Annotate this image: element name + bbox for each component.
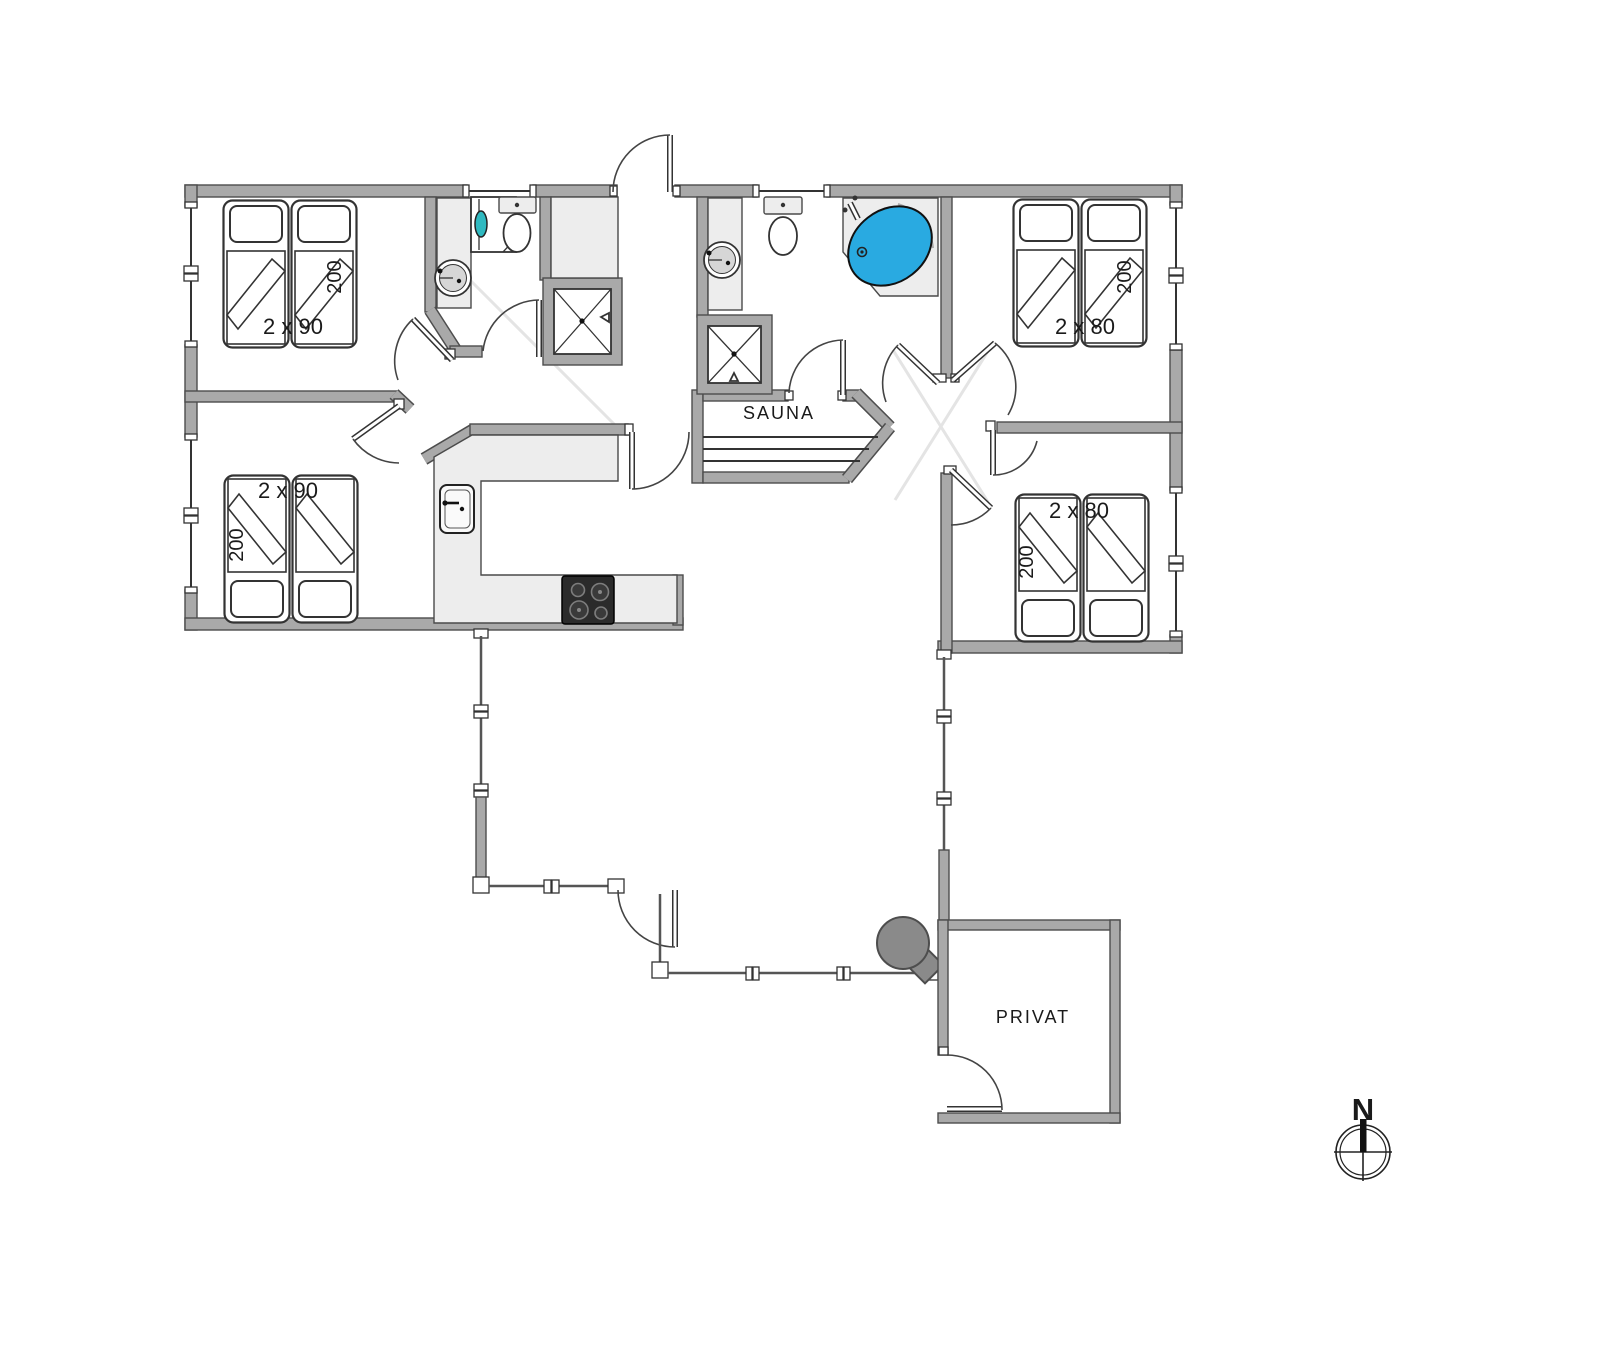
sauna-room: SAUNA bbox=[692, 390, 890, 483]
living-room-door bbox=[625, 424, 689, 489]
bed-length-label: 200 bbox=[324, 260, 346, 293]
bed-length-label: 200 bbox=[1016, 545, 1038, 578]
spa-bath-icon bbox=[832, 190, 947, 302]
kitchen-sink-icon bbox=[440, 485, 474, 533]
terrace-fence bbox=[473, 629, 951, 983]
compass-north-label: N bbox=[1352, 1092, 1374, 1127]
closet bbox=[551, 197, 618, 278]
kitchen bbox=[434, 435, 677, 624]
sauna-benches bbox=[703, 437, 878, 461]
privat-label: PRIVAT bbox=[996, 1007, 1070, 1027]
sink-icon bbox=[435, 260, 471, 296]
bedroom-bottom-left: 2 x 90 200 bbox=[225, 476, 358, 623]
shower-icon bbox=[697, 315, 772, 394]
bedroom-bottom-right: 2 x 80 200 bbox=[1016, 495, 1149, 642]
bedroom-top-right: 2 x 80 200 bbox=[1014, 200, 1147, 347]
bathroom-door bbox=[483, 300, 539, 357]
bedroom-top-left: 2 x 90 200 bbox=[224, 201, 357, 348]
bed-size-label: 2 x 80 bbox=[1049, 498, 1109, 523]
sauna-door bbox=[789, 340, 843, 395]
sauna-label: SAUNA bbox=[743, 403, 815, 423]
toilet-icon bbox=[764, 197, 802, 255]
bed-size-label: 2 x 90 bbox=[258, 478, 318, 503]
floor-plan-drawing: SAUNA bbox=[0, 0, 1612, 1370]
floor-plan-page: SAUNA bbox=[0, 0, 1612, 1370]
bed-length-label: 200 bbox=[1114, 260, 1136, 293]
bed-size-label: 2 x 90 bbox=[263, 314, 323, 339]
privat-door bbox=[947, 1055, 1002, 1110]
shower-icon bbox=[543, 278, 622, 365]
privat-room: PRIVAT bbox=[938, 920, 1120, 1123]
bed-length-label: 200 bbox=[226, 528, 248, 561]
compass-rose: N bbox=[1334, 1092, 1392, 1181]
entry-door bbox=[610, 135, 680, 196]
sink-icon bbox=[704, 242, 740, 278]
bed-size-label: 2 x 80 bbox=[1055, 314, 1115, 339]
stove-icon bbox=[562, 576, 614, 624]
bathroom-right bbox=[697, 190, 948, 394]
gate-door bbox=[618, 890, 675, 947]
bedroom-door bbox=[353, 399, 404, 463]
